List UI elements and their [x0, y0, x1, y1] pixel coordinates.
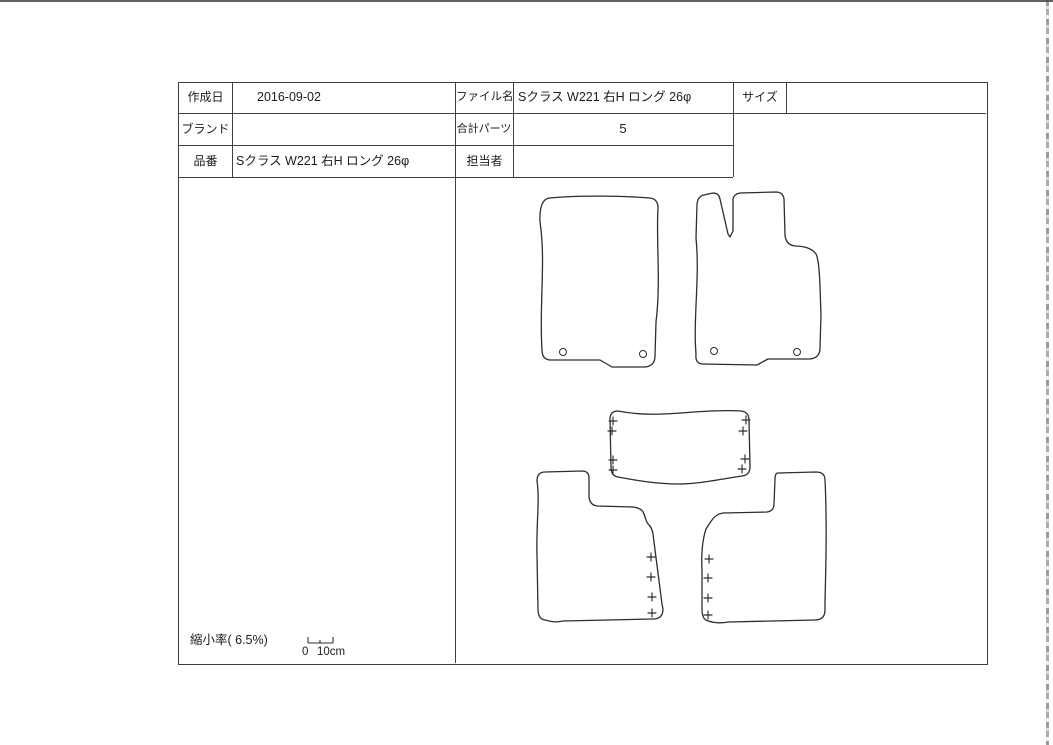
mat-center-tunnel-outline — [608, 411, 750, 484]
mat-rear-right-outline — [702, 472, 826, 623]
scale-bar-icon — [307, 636, 335, 645]
alignment-cross-marks — [608, 416, 750, 474]
mat-eyelet — [560, 349, 567, 356]
mat-front-driver-outline — [695, 192, 821, 365]
floor-mat-diagram — [0, 0, 1053, 745]
mat-front-passenger-outline — [540, 196, 658, 367]
mat-eyelet — [711, 348, 718, 355]
scale-unit-label: 10cm — [317, 646, 345, 659]
alignment-cross-marks — [647, 553, 656, 617]
alignment-cross-marks — [704, 555, 713, 619]
mat-eyelet — [640, 351, 647, 358]
mat-rear-left-outline — [537, 471, 663, 622]
scale-zero-label: 0 — [302, 646, 308, 659]
mat-eyelet — [794, 349, 801, 356]
reduction-ratio-label: 縮小率( 6.5%) — [190, 632, 268, 648]
